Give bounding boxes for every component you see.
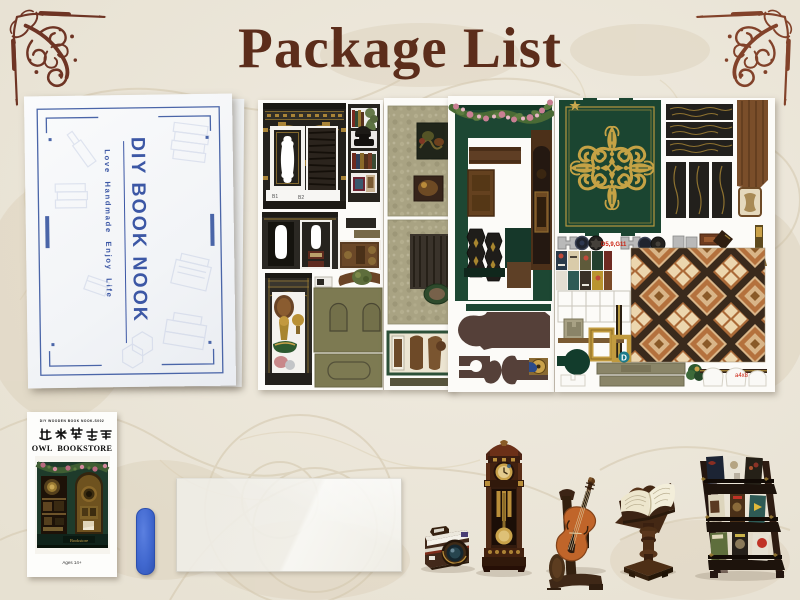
- svg-text:D5,9,G11: D5,9,G11: [601, 242, 627, 248]
- svg-text:D: D: [621, 354, 627, 363]
- svg-text:Love Handmade Enjoy Life: Love Handmade Enjoy Life: [103, 149, 114, 298]
- svg-text:B1: B1: [272, 194, 278, 200]
- svg-text:Ages 14+: Ages 14+: [62, 560, 82, 565]
- svg-text:DIY BOOK NOOK: DIY BOOK NOOK: [127, 137, 152, 323]
- svg-text:a4x8: a4x8: [735, 373, 749, 379]
- svg-text:B2: B2: [298, 195, 304, 201]
- svg-text:DIY WOODEN BOOK NOOK-S002: DIY WOODEN BOOK NOOK-S002: [40, 419, 104, 423]
- svg-text:OWL BOOKSTORE: OWL BOOKSTORE: [32, 444, 113, 453]
- svg-text:Bookstore: Bookstore: [70, 538, 88, 543]
